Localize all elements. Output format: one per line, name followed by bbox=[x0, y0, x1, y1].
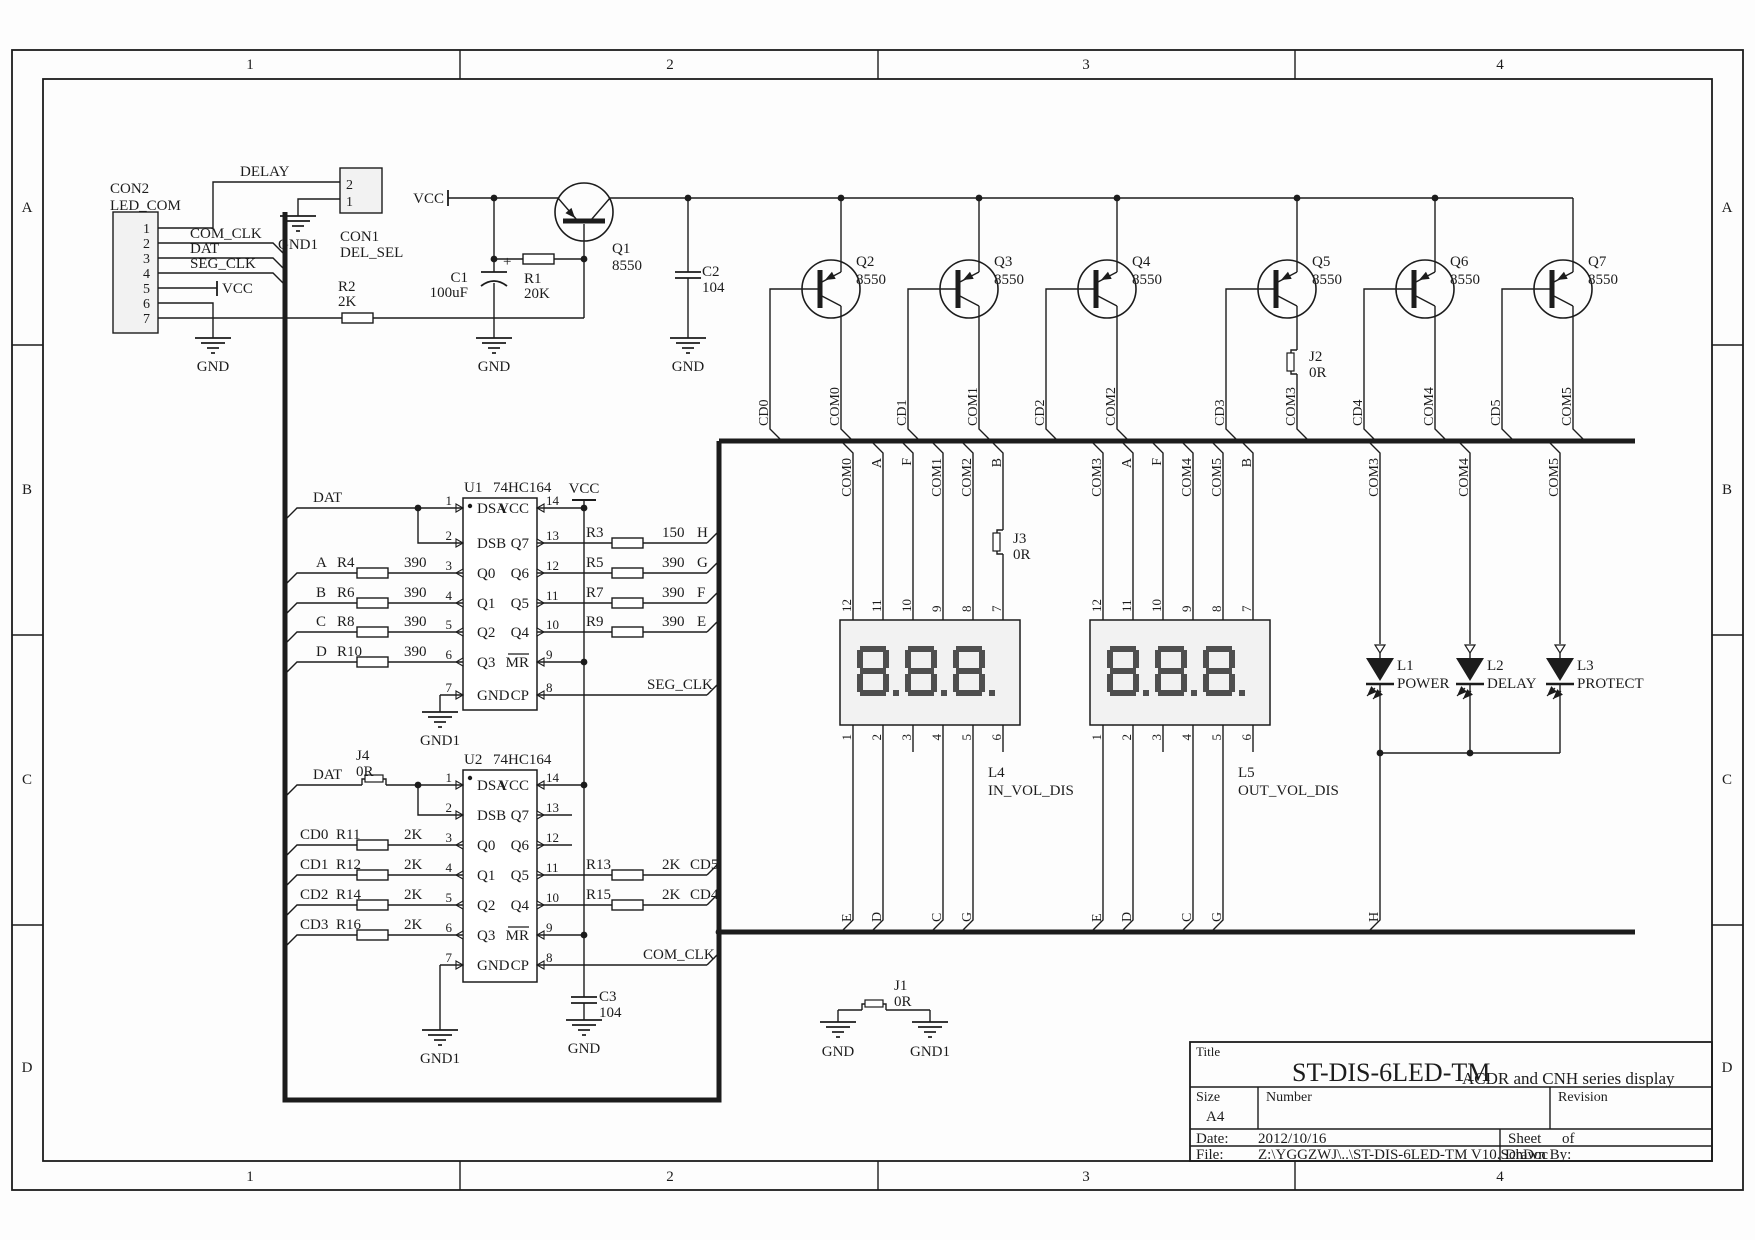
wire bbox=[841, 725, 853, 932]
pin-number: 8 bbox=[546, 680, 553, 695]
pin-number: 8 bbox=[959, 606, 974, 613]
wire bbox=[285, 632, 357, 644]
component-value: 390 bbox=[404, 644, 427, 660]
net-label: B bbox=[990, 458, 1005, 467]
pin-number: 7 bbox=[446, 680, 453, 695]
pin-number: 7 bbox=[1239, 605, 1254, 612]
net-label: CD3 bbox=[300, 917, 328, 933]
pin-number: 9 bbox=[1179, 606, 1194, 613]
led-diode-icon bbox=[1456, 658, 1484, 681]
refdes: R7 bbox=[586, 585, 604, 601]
refdes: Q4 bbox=[1132, 254, 1151, 270]
pin-number: 4 bbox=[143, 267, 150, 282]
file-label: File: bbox=[1196, 1147, 1224, 1163]
net-label: F bbox=[697, 585, 705, 601]
resistor-symbol bbox=[357, 900, 388, 910]
jumper-symbol bbox=[1287, 353, 1294, 371]
component-value: 8550 bbox=[612, 258, 642, 274]
pin-number: 1 bbox=[143, 222, 150, 237]
junction-dot bbox=[716, 929, 723, 936]
seven-segment-digit bbox=[979, 650, 985, 668]
component-value: 0R bbox=[356, 764, 374, 780]
date-value: 2012/10/16 bbox=[1258, 1131, 1327, 1147]
schematic-canvas: 11223344AABBCCDDTitleST-DIS-6LED-TMACDR … bbox=[0, 0, 1755, 1240]
component-value: 390 bbox=[404, 585, 427, 601]
pin-name: CP bbox=[511, 958, 529, 974]
pin-number: 2 bbox=[446, 800, 453, 815]
pin-number: 7 bbox=[446, 950, 453, 965]
seven-segment-digit bbox=[1110, 668, 1136, 674]
refdes: R10 bbox=[337, 644, 362, 660]
pin-number: 12 bbox=[546, 830, 559, 845]
seven-segment-digit bbox=[908, 646, 934, 652]
grid-row-label: D bbox=[1722, 1060, 1733, 1076]
seven-segment-digit bbox=[931, 650, 937, 668]
seven-segment-digit bbox=[1181, 674, 1187, 692]
net-label: CD0 bbox=[757, 400, 772, 426]
component-value: 2K bbox=[662, 887, 681, 903]
net-label: DAT bbox=[313, 767, 342, 783]
net-label: D bbox=[1120, 912, 1135, 922]
wire bbox=[991, 441, 1003, 530]
refdes: R6 bbox=[337, 585, 355, 601]
pin-number: 1 bbox=[1089, 734, 1104, 741]
component-value: 8550 bbox=[994, 272, 1024, 288]
junction-dot bbox=[491, 256, 498, 263]
revision-label: Revision bbox=[1558, 1090, 1608, 1105]
pin-number: 1 bbox=[839, 734, 854, 741]
component-value: 0R bbox=[1013, 547, 1031, 563]
led-diode-icon bbox=[1366, 658, 1394, 681]
seven-segment-digit bbox=[1158, 690, 1184, 696]
seven-segment-digit bbox=[905, 650, 911, 668]
seven-segment-digit bbox=[1155, 674, 1161, 692]
component-value: 20K bbox=[524, 286, 550, 302]
seven-segment-digit bbox=[953, 674, 959, 692]
pin-name: Q4 bbox=[511, 898, 530, 914]
net-label: COM0 bbox=[840, 458, 855, 497]
wire bbox=[1211, 725, 1223, 932]
pin-name: GND bbox=[477, 688, 510, 704]
refdes: U1 bbox=[464, 480, 482, 496]
junction-dot bbox=[581, 256, 588, 263]
pin-number: 10 bbox=[546, 890, 559, 905]
pin-name: DSB bbox=[477, 808, 506, 824]
refdes: U2 bbox=[464, 752, 482, 768]
net-label: C bbox=[930, 913, 945, 922]
refdes: CON1 bbox=[340, 229, 379, 245]
component-name: DEL_SEL bbox=[340, 245, 403, 261]
pin-number: 1 bbox=[446, 770, 453, 785]
size-label: Size bbox=[1196, 1090, 1220, 1105]
pin-number: 14 bbox=[546, 493, 560, 508]
wire bbox=[285, 662, 357, 674]
ground-label: GND1 bbox=[910, 1044, 950, 1060]
seven-segment-digit bbox=[956, 690, 982, 696]
pin-number: 4 bbox=[446, 588, 453, 603]
net-label: B bbox=[316, 585, 326, 601]
net-label: CD1 bbox=[895, 400, 910, 426]
refdes: R14 bbox=[336, 887, 362, 903]
pin-number: 2 bbox=[446, 528, 453, 543]
seven-segment-digit bbox=[1155, 650, 1161, 668]
pin-number: 3 bbox=[1149, 734, 1164, 741]
pin-number: 1 bbox=[346, 195, 353, 210]
component-value: 0R bbox=[1309, 365, 1327, 381]
net-label: A bbox=[316, 555, 327, 571]
wire bbox=[285, 875, 357, 887]
wire bbox=[285, 845, 357, 857]
refdes: R16 bbox=[336, 917, 362, 933]
pin-number: 5 bbox=[959, 734, 974, 741]
net-label: DAT bbox=[313, 490, 342, 506]
component-value: 8550 bbox=[1132, 272, 1162, 288]
pin-number: 6 bbox=[989, 734, 1004, 741]
sheet-label: Sheet bbox=[1508, 1131, 1542, 1147]
pin-number: 6 bbox=[446, 647, 453, 662]
pin-number: 7 bbox=[989, 605, 1004, 612]
component-value: 104 bbox=[599, 1005, 622, 1021]
wire bbox=[1151, 441, 1163, 620]
drawn-by-label: Drawn By: bbox=[1505, 1147, 1571, 1163]
pin-name: Q0 bbox=[477, 838, 495, 854]
ground-label: GND1 bbox=[278, 237, 318, 253]
pin-name: Q7 bbox=[511, 536, 530, 552]
wire bbox=[285, 573, 357, 585]
pin-number: 2 bbox=[869, 734, 884, 741]
net-label: E bbox=[840, 913, 855, 922]
seven-segment-digit bbox=[941, 690, 947, 696]
pin-number: 8 bbox=[546, 950, 553, 965]
refdes: C2 bbox=[702, 264, 720, 280]
net-label: B bbox=[1240, 458, 1255, 467]
jumper-symbol bbox=[993, 533, 1000, 551]
polarity-mark: + bbox=[503, 254, 511, 270]
seven-segment-digit bbox=[1206, 646, 1232, 652]
component-name: OUT_VOL_DIS bbox=[1238, 783, 1339, 799]
led-arrow-icon bbox=[1375, 645, 1385, 653]
pin-name: Q1 bbox=[477, 596, 495, 612]
seven-segment-digit bbox=[1143, 690, 1149, 696]
refdes: J3 bbox=[1013, 531, 1026, 547]
pin-name: Q6 bbox=[511, 566, 530, 582]
net-label: COM3 bbox=[1367, 458, 1382, 497]
pin-number: 3 bbox=[446, 830, 453, 845]
component-value: 150 bbox=[662, 525, 685, 541]
wire bbox=[871, 725, 883, 932]
wire bbox=[158, 303, 213, 338]
component-value: 8550 bbox=[1450, 272, 1480, 288]
refdes: R1 bbox=[524, 271, 542, 287]
pin-name: Q4 bbox=[511, 625, 530, 641]
seven-segment-digit bbox=[1206, 690, 1232, 696]
grid-row-label: C bbox=[22, 772, 32, 788]
pin1-mark bbox=[468, 776, 472, 780]
net-label: H bbox=[697, 525, 708, 541]
pin-name: Q2 bbox=[477, 625, 495, 641]
seven-segment-digit bbox=[1133, 650, 1139, 668]
pin-number: 8 bbox=[1209, 606, 1224, 613]
net-label: COM4 bbox=[1457, 458, 1472, 497]
pin-number: 11 bbox=[1119, 599, 1134, 612]
ground-label: GND bbox=[672, 359, 705, 375]
resistor-symbol bbox=[612, 870, 643, 880]
pin-name: DSB bbox=[477, 536, 506, 552]
seven-segment-digit bbox=[1133, 674, 1139, 692]
resistor-symbol bbox=[357, 627, 388, 637]
seven-segment-digit bbox=[1110, 690, 1136, 696]
net-label: F bbox=[900, 458, 915, 466]
ground-label: GND1 bbox=[420, 733, 460, 749]
resistor-symbol bbox=[612, 627, 643, 637]
pin-number: 6 bbox=[1239, 734, 1254, 741]
resistor-symbol bbox=[357, 840, 388, 850]
seven-segment-digit bbox=[1181, 650, 1187, 668]
ground-label: GND bbox=[822, 1044, 855, 1060]
pin-name: Q2 bbox=[477, 898, 495, 914]
seven-segment-digit bbox=[905, 674, 911, 692]
wire bbox=[418, 508, 463, 543]
refdes: R11 bbox=[336, 827, 360, 843]
net-label: CD2 bbox=[300, 887, 328, 903]
refdes: R9 bbox=[586, 614, 604, 630]
net-label: G bbox=[697, 555, 708, 571]
led-diode-icon bbox=[1546, 658, 1574, 681]
part-number: 74HC164 bbox=[493, 480, 552, 496]
refdes: R8 bbox=[337, 614, 355, 630]
refdes: R15 bbox=[586, 887, 611, 903]
net-label: COM3 bbox=[1090, 458, 1105, 497]
grid-column-label: 4 bbox=[1496, 57, 1504, 73]
seven-segment-digit bbox=[860, 690, 886, 696]
seven-segment-digit bbox=[883, 650, 889, 668]
seven-segment-digit bbox=[860, 646, 886, 652]
pin-number: 5 bbox=[143, 282, 150, 297]
pin-number: 9 bbox=[929, 606, 944, 613]
seven-segment-digit bbox=[1158, 668, 1184, 674]
seven-segment-digit bbox=[857, 650, 863, 668]
resistor-symbol bbox=[523, 254, 554, 264]
refdes: C1 bbox=[450, 270, 468, 286]
component-value: 2K bbox=[662, 857, 681, 873]
refdes: R12 bbox=[336, 857, 361, 873]
component-name: POWER bbox=[1397, 676, 1450, 692]
net-label: C bbox=[1180, 913, 1195, 922]
grid-column-label: 4 bbox=[1496, 1169, 1504, 1185]
seven-segment-digit bbox=[953, 650, 959, 668]
jumper-symbol bbox=[865, 1000, 883, 1007]
resistor-symbol bbox=[612, 538, 643, 548]
led-arrow-icon bbox=[1465, 645, 1475, 653]
wire bbox=[285, 905, 357, 917]
pin-number: 4 bbox=[446, 860, 453, 875]
seven-segment-digit bbox=[1158, 646, 1184, 652]
refdes: L2 bbox=[1487, 658, 1504, 674]
pin-number: 5 bbox=[446, 617, 453, 632]
junction-dot bbox=[491, 195, 498, 202]
title-label: Title bbox=[1196, 1044, 1220, 1059]
resistor-symbol bbox=[612, 598, 643, 608]
net-label: DELAY bbox=[240, 164, 290, 180]
wire bbox=[158, 243, 285, 255]
refdes: CON2 bbox=[110, 181, 149, 197]
net-label: A bbox=[870, 457, 885, 468]
component-name: PROTECT bbox=[1577, 676, 1644, 692]
ground-label: GND bbox=[478, 359, 511, 375]
pin-number: 10 bbox=[546, 617, 559, 632]
component-name: DELAY bbox=[1487, 676, 1537, 692]
junction-dot bbox=[685, 195, 692, 202]
ground-label: GND bbox=[197, 359, 230, 375]
pin-number: 4 bbox=[1179, 734, 1194, 741]
pin-name: Q1 bbox=[477, 868, 495, 884]
wire bbox=[1121, 725, 1133, 932]
pin-number: 10 bbox=[899, 599, 914, 612]
power-label: VCC bbox=[569, 481, 600, 497]
schematic-subtitle: ACDR and CNH series display bbox=[1462, 1069, 1675, 1088]
net-label: E bbox=[697, 614, 706, 630]
net-label: CD0 bbox=[300, 827, 328, 843]
seven-segment-digit bbox=[860, 668, 886, 674]
component-value: 2K bbox=[404, 917, 423, 933]
pin-name: GND bbox=[477, 958, 510, 974]
net-label: CD5 bbox=[1489, 400, 1504, 426]
pin-name: VCC bbox=[498, 501, 529, 517]
wire bbox=[285, 508, 463, 520]
component-name: IN_VOL_DIS bbox=[988, 783, 1074, 799]
refdes: L4 bbox=[988, 765, 1005, 781]
part-number: 74HC164 bbox=[493, 752, 552, 768]
ground-label: GND bbox=[568, 1041, 601, 1057]
pin-number: 2 bbox=[143, 237, 150, 252]
pin-name: MR bbox=[506, 928, 529, 944]
pin-number: 14 bbox=[546, 770, 560, 785]
con2-connector bbox=[113, 212, 158, 333]
net-label: COM4 bbox=[1422, 387, 1437, 426]
pin-name: Q5 bbox=[511, 868, 529, 884]
refdes: R5 bbox=[586, 555, 604, 571]
refdes: Q3 bbox=[994, 254, 1012, 270]
resistor-symbol bbox=[612, 568, 643, 578]
grid-row-label: B bbox=[22, 482, 32, 498]
pin-number: 6 bbox=[143, 297, 150, 312]
pin-number: 11 bbox=[869, 599, 884, 612]
pin-name: Q3 bbox=[477, 928, 495, 944]
pin-number: 5 bbox=[1209, 734, 1224, 741]
sheet-of-label: of bbox=[1562, 1131, 1575, 1147]
pin-number: 3 bbox=[899, 734, 914, 741]
seven-segment-digit bbox=[1107, 650, 1113, 668]
grid-row-label: C bbox=[1722, 772, 1732, 788]
grid-column-label: 3 bbox=[1082, 1169, 1090, 1185]
resistor-symbol bbox=[357, 930, 388, 940]
size-value: A4 bbox=[1206, 1109, 1225, 1125]
net-label: F bbox=[1150, 458, 1165, 466]
component-value: 104 bbox=[702, 280, 725, 296]
pin-number: 6 bbox=[446, 920, 453, 935]
net-label: CD2 bbox=[1033, 400, 1048, 426]
net-label: COM4 bbox=[1180, 458, 1195, 497]
component-value: 8550 bbox=[1312, 272, 1342, 288]
seven-segment-digit bbox=[1203, 650, 1209, 668]
net-label: CD1 bbox=[300, 857, 328, 873]
pin-number: 7 bbox=[143, 312, 150, 327]
wire bbox=[418, 785, 463, 815]
net-label: COM5 bbox=[1547, 458, 1562, 497]
pin-number: 11 bbox=[546, 860, 559, 875]
pin-number: 9 bbox=[546, 647, 553, 662]
seven-segment-digit bbox=[956, 668, 982, 674]
refdes: L1 bbox=[1397, 658, 1414, 674]
pin-name: MR bbox=[506, 655, 529, 671]
seven-segment-digit bbox=[979, 674, 985, 692]
pin-number: 9 bbox=[546, 920, 553, 935]
net-label: C bbox=[316, 614, 326, 630]
net-label: COM_CLK bbox=[643, 947, 715, 963]
number-label: Number bbox=[1266, 1090, 1312, 1105]
wire bbox=[285, 785, 362, 797]
seven-segment-digit bbox=[893, 690, 899, 696]
component-value: 2K bbox=[404, 827, 423, 843]
refdes: Q2 bbox=[856, 254, 874, 270]
refdes: Q7 bbox=[1588, 254, 1607, 270]
wire bbox=[961, 725, 973, 932]
component-value: 2K bbox=[404, 887, 423, 903]
date-label: Date: bbox=[1196, 1131, 1228, 1147]
ground-label: GND1 bbox=[420, 1051, 460, 1067]
net-label: CD3 bbox=[1213, 400, 1228, 426]
component-value: 2K bbox=[338, 294, 357, 310]
grid-column-label: 2 bbox=[666, 57, 674, 73]
pin-number: 12 bbox=[546, 558, 559, 573]
seven-segment-digit bbox=[1229, 674, 1235, 692]
pin-name: Q0 bbox=[477, 566, 495, 582]
pin-number: 12 bbox=[1089, 599, 1104, 612]
component-name: LED_COM bbox=[110, 198, 181, 214]
grid-row-label: A bbox=[1722, 200, 1733, 216]
pin-number: 10 bbox=[1149, 599, 1164, 612]
net-label: D bbox=[870, 912, 885, 922]
pin-number: 3 bbox=[446, 558, 453, 573]
net-label: COM5 bbox=[1560, 387, 1575, 426]
resistor-symbol bbox=[612, 900, 643, 910]
refdes: Q6 bbox=[1450, 254, 1469, 270]
grid-column-label: 3 bbox=[1082, 57, 1090, 73]
grid-row-label: A bbox=[22, 200, 33, 216]
net-label: COM0 bbox=[828, 387, 843, 426]
pin-number: 13 bbox=[546, 528, 559, 543]
seven-segment-digit bbox=[1229, 650, 1235, 668]
pin-number: 12 bbox=[839, 599, 854, 612]
seven-segment-digit bbox=[908, 690, 934, 696]
seven-segment-digit bbox=[1206, 668, 1232, 674]
component-value: 390 bbox=[404, 555, 427, 571]
component-value: 390 bbox=[662, 555, 685, 571]
pin-name: Q3 bbox=[477, 655, 495, 671]
refdes: R2 bbox=[338, 279, 356, 295]
net-label: CD4 bbox=[690, 887, 719, 903]
pin-number: 13 bbox=[546, 800, 559, 815]
refdes: C3 bbox=[599, 989, 617, 1005]
wire bbox=[285, 935, 357, 947]
wire bbox=[1181, 725, 1193, 932]
refdes: L5 bbox=[1238, 765, 1255, 781]
pin-number: 2 bbox=[346, 178, 353, 193]
net-label: COM_CLK bbox=[190, 226, 262, 242]
pin-number: 2 bbox=[1119, 734, 1134, 741]
grid-column-label: 1 bbox=[246, 1169, 254, 1185]
net-label: COM3 bbox=[1284, 387, 1299, 426]
